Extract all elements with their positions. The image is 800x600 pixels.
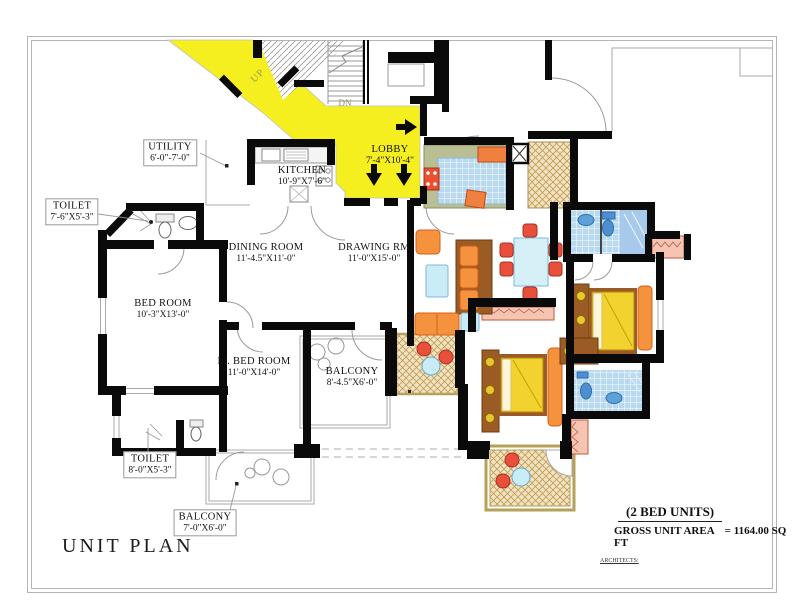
page-title: UNIT PLAN	[62, 535, 194, 558]
floor-plan-page: UTILITY6'-0"-7'-0" TOILET7'-6"X5'-3" KIT…	[0, 0, 800, 600]
toilet-bottom-label: TOILET8'-0"X5'-3"	[123, 451, 176, 478]
projection-dashes	[322, 449, 466, 457]
drawing-room-label: DRAWING RM11'-0"X15'-0"	[338, 242, 410, 264]
stair-dn-label: DN	[339, 98, 352, 108]
balcony-bottom-railing	[206, 450, 314, 504]
right-unit	[396, 142, 684, 510]
window	[126, 389, 154, 394]
gross-area-text: GROSS UNIT AREA= 1164.00 SQ FT	[614, 525, 800, 549]
balcony-mid-label: BALCONY8'-4.5"X6'-0"	[326, 366, 379, 388]
master-bedroom-label: M. BED ROOM11'-0"X14'-0"	[217, 356, 290, 378]
balcony-bottom-label: BALCONY7'-0"X6'-0"	[174, 509, 237, 536]
living-furniture	[415, 230, 492, 335]
dining-room-label: DINING ROOM11'-4.5"X11'-0"	[229, 242, 304, 264]
window	[114, 416, 119, 438]
utility-hatch	[528, 142, 572, 208]
washbasin	[179, 217, 197, 230]
gross-area-label: GROSS UNIT AREA	[614, 525, 715, 537]
kitchen-label: KITCHEN10'-9"X7'-6"	[278, 165, 326, 187]
lift-shaft	[388, 64, 424, 86]
wc-bowl	[159, 222, 171, 238]
fridge	[478, 147, 508, 162]
toilet-top-label: TOILET7'-6"X5'-3"	[45, 198, 98, 225]
wc-tank	[156, 214, 174, 222]
bedroom-label: BED ROOM10'-3"X13'-0"	[134, 298, 192, 320]
unit-type-text: (2 BED UNITS)	[618, 504, 722, 522]
planter	[482, 307, 554, 320]
window	[101, 298, 106, 334]
lobby-label: LOBBY7'-4"X10'-4"	[366, 144, 414, 166]
bed-master	[482, 348, 562, 432]
architects-label: ARCHITECTS:	[600, 558, 639, 564]
utility-label: UTILITY6'-0"-7'-0"	[143, 139, 197, 166]
washbasin	[578, 215, 594, 226]
wc	[603, 220, 614, 236]
window	[658, 300, 663, 330]
